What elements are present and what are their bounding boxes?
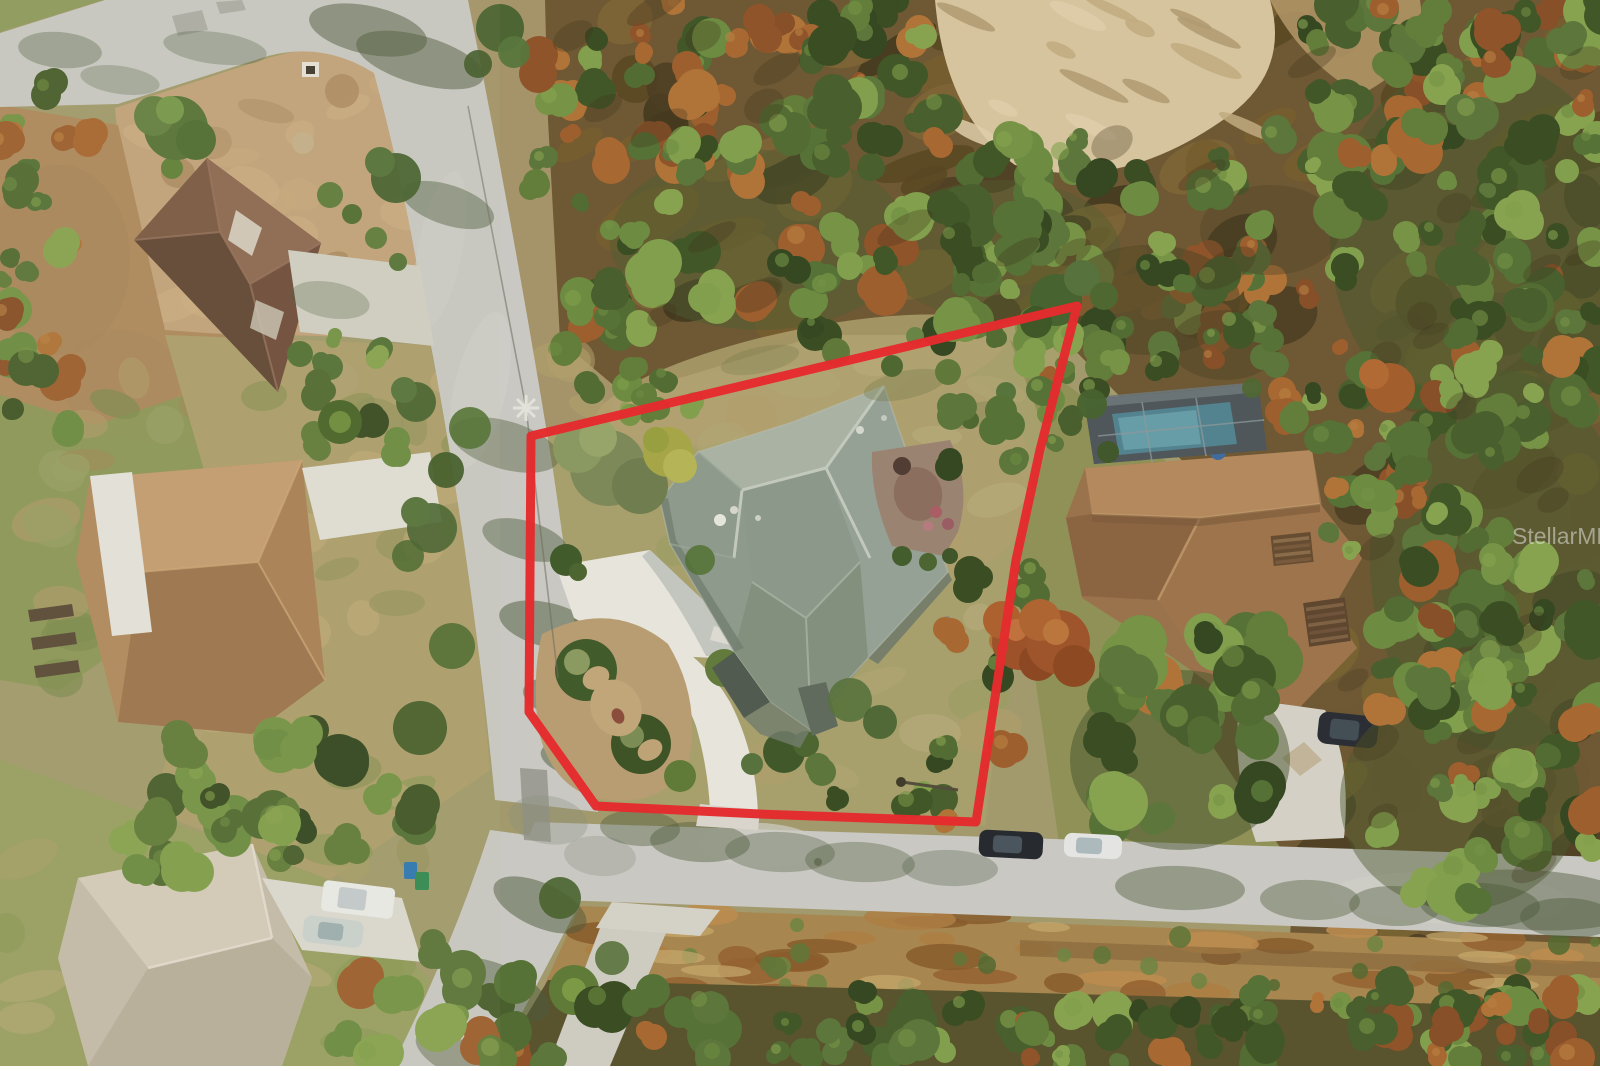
svg-text:StellarMLS: StellarMLS <box>1512 523 1600 549</box>
